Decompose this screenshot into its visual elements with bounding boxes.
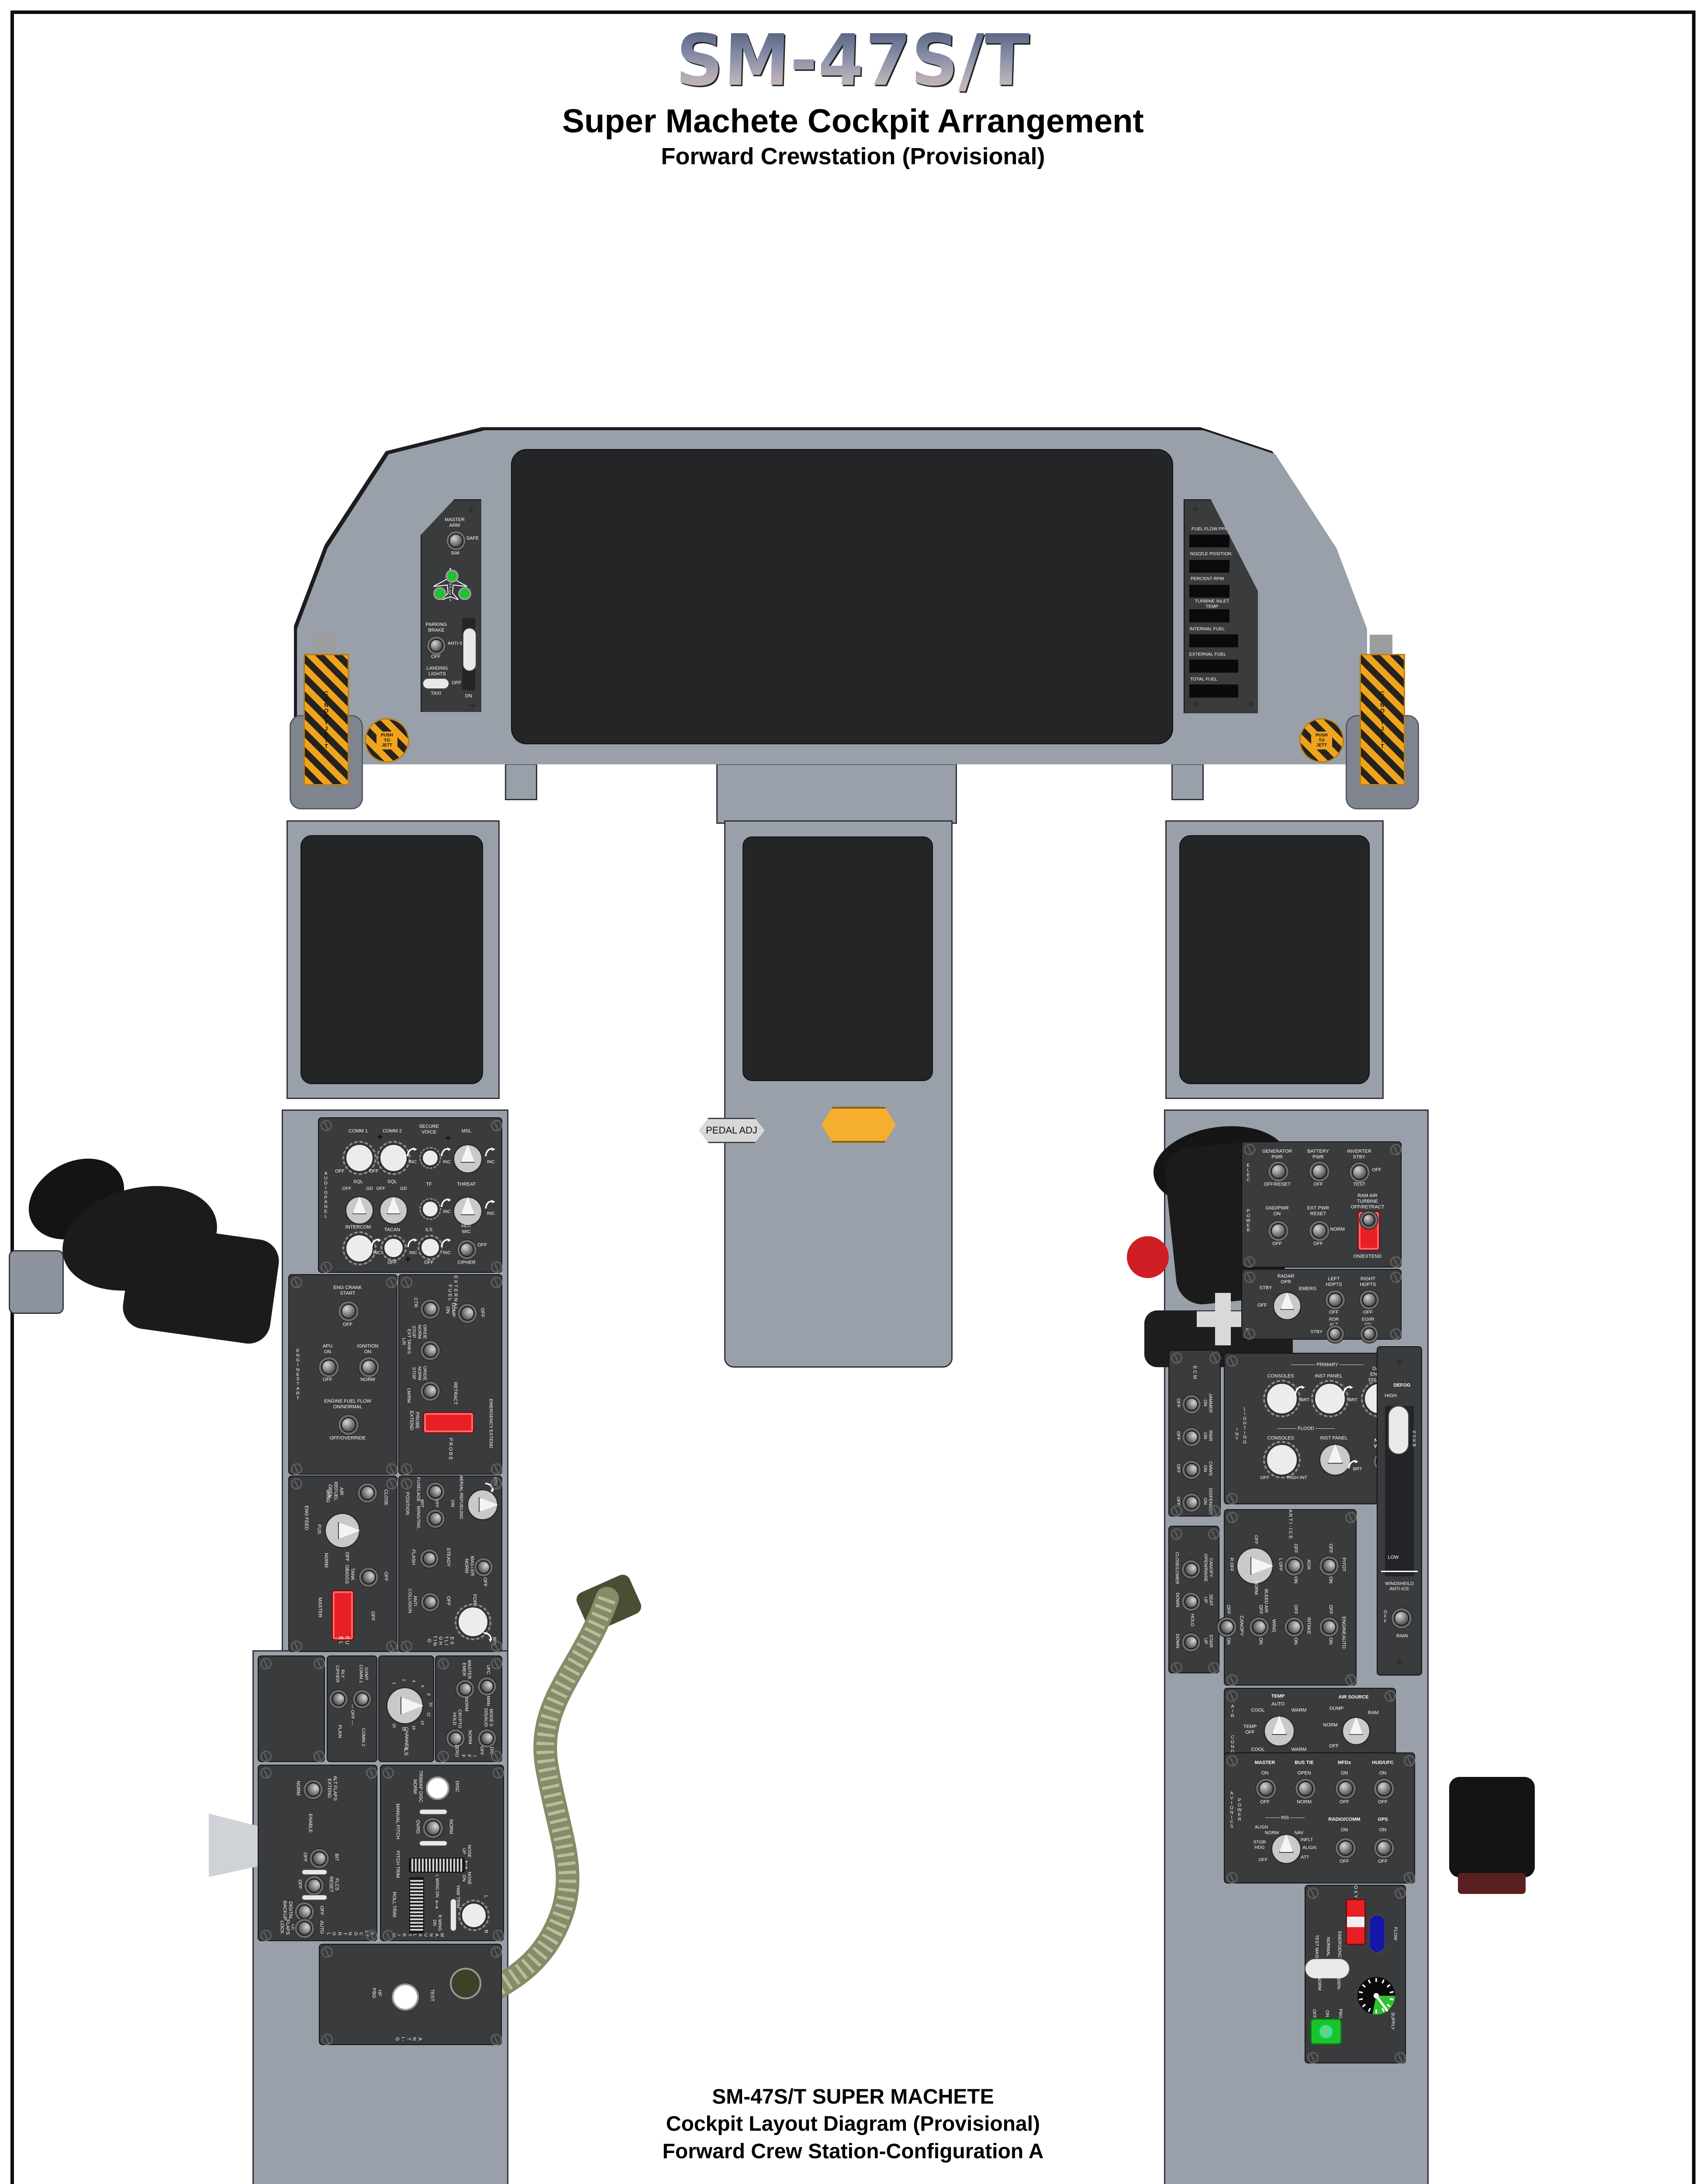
left_disc[interactable]: PUSH TO JETT (365, 718, 409, 763)
knob-pointer (1349, 1717, 1363, 1735)
title-block: SM-47S/T Super Machete Cockpit Arrangeme… (0, 23, 1706, 170)
tacan-knob[interactable] (383, 1237, 404, 1258)
defog-norm-label: NORM (1412, 1430, 1416, 1448)
glare-right-total-fuel-label: TOTAL FUEL (1190, 677, 1217, 682)
audio-inc-label: INC (443, 1209, 451, 1214)
antiice-panel: A N T I - I C EPITOTOFFONENGINEOFFONAUTO… (1224, 1509, 1357, 1686)
gear-nose-light (445, 570, 459, 583)
aircond-screw-icon (1226, 1690, 1238, 1702)
iff-mode5-switch[interactable] (480, 1731, 494, 1745)
gnd-pwr-switch[interactable] (1271, 1223, 1286, 1239)
defog-ln-label (1381, 1571, 1418, 1572)
pitch-trim-wheel[interactable] (409, 1858, 465, 1873)
canopyseat-screw-icon (1171, 1528, 1182, 1540)
position-fuselage-switch[interactable] (428, 1485, 442, 1499)
avionics-screw-icon (1404, 1755, 1415, 1766)
oxygen-norm-label: NORM (1317, 1977, 1322, 1990)
antig-panel-content: HF PBGTESTA N T I - G (320, 1945, 501, 2044)
mantrim-trim-ap-disc-norm-label: TRIM/AP DISC NORM (412, 1770, 423, 1803)
iff-master-switch[interactable] (458, 1682, 472, 1696)
defog-rain-label: RAIN (1396, 1634, 1408, 1639)
battery-pwr-switch[interactable] (1312, 1164, 1327, 1179)
oxygen-on-label: ON (1325, 2010, 1330, 2017)
ecm-off-label: OFF (1176, 1497, 1181, 1506)
ilschan-dial-num-12: 12 (426, 1712, 431, 1717)
footer-block: SM-47S/T SUPER MACHETE Cockpit Layout Di… (0, 2084, 1706, 2184)
aircond-screw-icon (1385, 1690, 1396, 1702)
avionics-nav-label: NAV (1295, 1830, 1304, 1835)
avionics-on-label: ON (1341, 1828, 1348, 1833)
blank1-screw-icon (314, 1751, 325, 1762)
snsr-screw-icon (1390, 1272, 1402, 1283)
engstart-screw-icon (386, 1277, 397, 1288)
oxygen-supply-gauge (1357, 1977, 1395, 2015)
defog-defog-label: DEFOG (1393, 1383, 1410, 1389)
gxmt-panel: GXMT COMM 1— OFF —COMM 2RLY CIPHERPLAIN (327, 1655, 377, 1762)
gxmt-rly-cipher-label: RLY CIPHER (335, 1665, 345, 1683)
snsr-screw-icon (1390, 1328, 1402, 1340)
fuel-master-switch[interactable] (332, 1590, 354, 1641)
tank-obiggs-switch[interactable] (361, 1570, 376, 1585)
avionics-on-label: ON (1379, 1828, 1387, 1833)
ecm-jammer-on-label: JAMMER ON (1202, 1393, 1213, 1413)
audio-sql-label: SQL (387, 1179, 397, 1185)
extfuel-ext-tanks-l-r-label: EXT TANKS L/R (401, 1329, 412, 1354)
tf-knob[interactable] (421, 1200, 439, 1218)
aircond-off-label: OFF (1329, 1744, 1339, 1749)
audio--label: + (405, 1254, 411, 1266)
canopy-switch[interactable] (1184, 1562, 1198, 1576)
extltg-master-norm-label: MASTER NORM (463, 1556, 475, 1576)
blank1-screw-icon (260, 1751, 272, 1762)
sidestick-red-button (1127, 1236, 1169, 1278)
total-fuel-display (1189, 684, 1238, 698)
ecm-screw-icon (1209, 1505, 1221, 1517)
knob-pointer (387, 1196, 401, 1214)
audio-secure-voice-label: SECURE VOICE (419, 1124, 439, 1135)
generator-pwr-switch[interactable] (1271, 1164, 1286, 1179)
oxygen-mode-switch[interactable] (1346, 1899, 1366, 1945)
le-flaps-lock-switch[interactable] (297, 1921, 312, 1936)
gxmt-comm-switch[interactable] (355, 1692, 369, 1706)
antiice-screw-icon (1226, 1512, 1238, 1523)
fltctl-flcs-reset-label: FLCS RESET (328, 1876, 339, 1893)
ilschan-dial-num-8: 8 (426, 1693, 431, 1696)
elecpwr-inverter-stby-label: INVERTER STBY (1347, 1149, 1371, 1160)
external-fuel-display (1189, 660, 1238, 673)
ram-air-turbine-toggle[interactable] (1362, 1213, 1375, 1227)
defog-lever[interactable] (1388, 1406, 1409, 1455)
antiice-canopy-label: CANOPY (1239, 1616, 1244, 1636)
ecm-panel-content: E C MJAMMER ONOFFRWR ONOFFCMWS ONOFFDISP… (1169, 1351, 1220, 1516)
bleed-air-knob[interactable] (1236, 1547, 1274, 1585)
stair-switch[interactable] (1184, 1635, 1198, 1649)
probe-switch[interactable] (423, 1412, 474, 1434)
ecm-screw-icon (1171, 1352, 1182, 1364)
mantrim-panel: TRIM/AP DISC NORMDISCMANUAL PITCHOVRDNOR… (380, 1765, 504, 1941)
left_handle[interactable]: CANOPY JETT (304, 654, 349, 785)
threat-knob[interactable] (453, 1196, 483, 1226)
fltctl-bit-label: BIT (334, 1853, 339, 1861)
inc-arrow-icon (439, 1236, 452, 1249)
ecm-off-label: OFF (1176, 1431, 1181, 1441)
snsr-off-label: OFF (1329, 1310, 1339, 1316)
seat-switch[interactable] (1184, 1595, 1198, 1609)
audio-comm-1-label: COMM 1 (349, 1129, 368, 1134)
right_disc[interactable]: PUSH TO JETT (1299, 718, 1344, 763)
glare-right-percent-rpm-label: PERCENT RPM (1191, 576, 1224, 581)
intake-anti-ice-switch[interactable] (1287, 1620, 1302, 1635)
avionics-power-label: POWER (1237, 1798, 1242, 1822)
bit-switch[interactable] (312, 1851, 327, 1866)
canopyseat-close-lower-label: CLOSE/LOWER (1174, 1552, 1179, 1584)
anti-g-hose-port[interactable] (450, 1968, 481, 1999)
extltg-brt-label: BRT (419, 1500, 424, 1508)
parking-brake-switch[interactable] (429, 639, 443, 653)
snsr-screw-icon (1244, 1328, 1255, 1340)
ils-knob[interactable] (420, 1237, 440, 1258)
glare-right-internal-fuel-label: INTERNAL FUEL (1189, 626, 1225, 632)
elecpwr-off-label: OFF (1313, 1241, 1323, 1247)
oxygen-diluter-lever[interactable] (1305, 1958, 1350, 1979)
iff-norm-label: NORM (464, 1697, 469, 1711)
ecm-panel: E C MJAMMER ONOFFRWR ONOFFCMWS ONOFFDISP… (1168, 1350, 1221, 1517)
intltg-high-int-label: HIGH INT (1287, 1475, 1307, 1480)
extltg-panel-content: BRTAERIAL REFUELINGPOSITIONFUSELAGEWING/… (399, 1476, 501, 1651)
rdr-alt-switch[interactable] (1329, 1327, 1342, 1341)
gps-switch[interactable] (1376, 1840, 1392, 1856)
landing-gear-lever[interactable] (463, 628, 477, 671)
audio-hot-mic-label: HOT MIC (461, 1223, 471, 1235)
secure-voice-knob[interactable] (421, 1149, 439, 1167)
position-wingtail-switch[interactable] (428, 1512, 442, 1526)
ext-tanks-lmrm-switch[interactable] (423, 1384, 438, 1399)
apu-switch[interactable] (321, 1359, 337, 1375)
engstart-off-override-label: OFF/OVERRIDE (330, 1436, 366, 1441)
iff-screw-icon (491, 1751, 502, 1762)
snsr-left-hdpts-label: LEFT HDPTS (1326, 1276, 1342, 1288)
ilschan-panel-content: 12468101214161820CHANNELILS (379, 1656, 433, 1761)
landing-lights-switch[interactable] (422, 678, 449, 689)
manual-pitch-switch[interactable] (425, 1820, 441, 1836)
engstart-eng-crank-start-label: ENG CRANK START (333, 1285, 362, 1296)
iff-crypto-switch[interactable] (449, 1731, 463, 1745)
ext-ltg-master-switch[interactable] (477, 1560, 490, 1574)
percent-rpm-display (1189, 585, 1229, 598)
right-grip-handle[interactable] (1449, 1777, 1535, 1877)
avionics-off-label: OFF (1260, 1800, 1270, 1805)
avionics-radio-comm-label: RADIO/COMM (1328, 1817, 1360, 1823)
gxmt-plain-label: PLAIN (337, 1725, 342, 1738)
antiice-on-label: ON (1293, 1638, 1298, 1645)
engine-anti-ice-switch[interactable] (1322, 1620, 1336, 1635)
antiice-off-label: OFF (1258, 1605, 1264, 1614)
comm2-volume-knob[interactable] (379, 1144, 408, 1172)
oxygen-screw-icon (1307, 1887, 1319, 1899)
pbg-switch[interactable] (1310, 2018, 1342, 2045)
center-mfd-screen (742, 836, 933, 1081)
audio-panel: AUDIO PANELCOMM 1COMM 2SECURE VOICEMSL++… (318, 1117, 502, 1273)
mantrim-r-wing-dn-label: R WING DN (432, 1914, 442, 1932)
oxygen-normal-label: NORMAL (1326, 1937, 1331, 1957)
knob-pointer (352, 1196, 366, 1214)
aerial-refueling-knob[interactable] (467, 1489, 498, 1521)
ext-tanks-lr-switch[interactable] (423, 1343, 438, 1358)
audio-screw-icon (321, 1261, 332, 1273)
yaw-trim-knob[interactable] (461, 1902, 487, 1928)
manual-pitch-guard-l[interactable] (419, 1809, 448, 1815)
iff-screw-icon (491, 1658, 502, 1669)
fuel-close-label: CLOSE (383, 1489, 389, 1505)
canopy-anti-ice-switch[interactable] (1219, 1620, 1234, 1635)
mfds-switch[interactable] (1338, 1781, 1354, 1797)
left_disc-label: PUSH TO JETT (376, 732, 397, 750)
snsr-eo-ir-on-label: EO/IR ON (1362, 1317, 1374, 1328)
intltg-lighting-label: LIGHTING (1243, 1406, 1247, 1444)
inc-arrow-icon (1293, 1383, 1306, 1396)
avionics-bus-tie-label: BUS TIE (1295, 1760, 1313, 1766)
intltg-brt-label: BRT (1301, 1397, 1310, 1403)
audio-inc-label: INC (409, 1159, 417, 1165)
cabin-temp-knob[interactable] (1264, 1715, 1295, 1747)
pitot-anti-ice-switch[interactable] (1322, 1559, 1336, 1573)
digital-backup-switch[interactable] (297, 1904, 312, 1919)
inc-arrow-icon (483, 1197, 497, 1210)
intltg-screw-icon (1226, 1493, 1238, 1504)
eng-crank-switch[interactable] (341, 1303, 356, 1319)
canopyseat-seat-up-label: SEAT UP (1203, 1594, 1214, 1606)
fuel-screw-icon (291, 1478, 302, 1489)
antiice-l-off-label: L OFF (1278, 1558, 1283, 1571)
elecpwr-screw-icon (1244, 1144, 1255, 1155)
ext-pwr-switch[interactable] (1312, 1223, 1327, 1239)
comm1-sql-knob[interactable] (345, 1196, 374, 1225)
air-refuel-switch[interactable] (360, 1486, 375, 1500)
intltg-inst-panel-label: INST PANEL (1315, 1374, 1342, 1379)
intltg-brt-label: BRT (1349, 1397, 1358, 1403)
aircond-warm-label: WARM (1292, 1708, 1306, 1714)
elecpwr-ram-air-turbine-off-retract-label: RAM AIR TURBINE OFF/RETRACT (1351, 1193, 1385, 1210)
audio-off-label: OFF (335, 1169, 345, 1175)
snsr-stby-label: STBY (1260, 1286, 1272, 1291)
yaw-trim-guard[interactable] (450, 1898, 457, 1932)
glare-left-off-label: OFF (452, 681, 461, 686)
roll-trim-wheel[interactable] (409, 1877, 424, 1933)
knob-pointer (1279, 1834, 1293, 1853)
elecpwr-screw-icon (1244, 1256, 1255, 1268)
avionics-master-switch[interactable] (1258, 1781, 1274, 1797)
aircond-temp-label: TEMP (1271, 1694, 1285, 1700)
ins-mode-knob[interactable] (1271, 1834, 1302, 1864)
aircond-cool-label: COOL (1251, 1708, 1264, 1714)
right_handle[interactable]: CANOPY JETT (1360, 654, 1405, 785)
fltctl-auto-label: AUTO (319, 1921, 325, 1934)
jammer-switch[interactable] (1185, 1397, 1198, 1411)
engstart-screw-icon (291, 1463, 302, 1475)
extltg-screw-icon (401, 1478, 412, 1489)
dispenser-switch[interactable] (1185, 1496, 1198, 1510)
alt-flaps-switch[interactable] (306, 1782, 321, 1797)
antiice-on-label: ON (1293, 1576, 1298, 1584)
windshield-anti-ice-switch[interactable] (1394, 1610, 1409, 1626)
antig-screw-icon (321, 1946, 333, 1958)
anti-collision-switch[interactable] (423, 1595, 437, 1609)
iff-crypto-hold-label: CRYPTO HOLD (452, 1709, 463, 1728)
eng-feed-knob[interactable] (325, 1513, 360, 1548)
canopyseat-panel: CANOPY OPEN/RAISECLOSE/LOWERSEAT UPDOWNH… (1168, 1526, 1219, 1673)
canopyseat-screw-icon (1208, 1662, 1219, 1673)
iff-zero-label: ZERO (454, 1744, 459, 1757)
antiice-r-off-label: R OFF (1229, 1558, 1234, 1572)
extltg-screw-icon (491, 1478, 502, 1489)
audio-tacan-label: TACAN (384, 1227, 400, 1233)
intltg-consoles-label: CONSOLES (1267, 1374, 1294, 1379)
left-hdpts-switch[interactable] (1328, 1292, 1343, 1307)
fltctl-panel-content: ALT FLAPS EXTENDNORMENABLEBITOFFFLCS RES… (259, 1766, 376, 1940)
audio-tf-label: TF (426, 1182, 432, 1188)
antig-screw-icon (490, 1946, 502, 1958)
aircraft-designation: SM-47S/T (675, 20, 1031, 102)
hot-mic-switch[interactable] (459, 1242, 474, 1257)
snsr-panel: RRADAR OPRSTBYEMERGOFFLEFT HDPTSOFFRIGHT… (1241, 1269, 1402, 1340)
defog-high-label: HIGH (1385, 1393, 1397, 1399)
air-source-knob[interactable] (1342, 1717, 1371, 1745)
gear-right-light (458, 587, 471, 600)
fltctl-off-label: OFF (297, 1880, 303, 1889)
intltg-brt-label: BRT (1353, 1466, 1362, 1472)
hud-ufc-switch[interactable] (1376, 1781, 1392, 1797)
rly-cipher-switch[interactable] (332, 1692, 345, 1706)
right-hdpts-switch[interactable] (1362, 1292, 1377, 1307)
trim-ap-disc-button[interactable] (426, 1776, 449, 1800)
comm1-volume-knob[interactable] (345, 1144, 374, 1172)
extfuel-dump-on-label: DUMP ON (445, 1303, 456, 1317)
fltctl-off-label: OFF (319, 1906, 325, 1915)
anti-g-test-button[interactable] (392, 1984, 419, 2011)
bus-tie-switch[interactable] (1298, 1781, 1313, 1797)
extfuel-screw-icon (491, 1463, 502, 1475)
antiice-off-label: OFF (1226, 1605, 1231, 1614)
ilschan-dial-num-4: 4 (411, 1680, 416, 1682)
aoa-anti-ice-switch[interactable] (1287, 1559, 1302, 1573)
fuel-f-u-e-l-label: F U E L (338, 1635, 350, 1646)
iff-ufc-man-switch[interactable] (480, 1679, 494, 1693)
engstart-engine-fuel-flow-on-normal-label: ENGINE FUEL FLOW ON/NORMAL (324, 1399, 371, 1410)
iff-off-label: OFF (479, 1746, 484, 1755)
glare-left-sim-label: SIM (451, 551, 459, 556)
avionics-screw-icon (1226, 1755, 1238, 1766)
extltg-off-label: OFF (434, 1500, 439, 1508)
comm2-sql-knob[interactable] (379, 1196, 408, 1225)
avionics-align-label: ALIGN (1255, 1825, 1268, 1830)
avionics-inflt-label: INFLT (1301, 1837, 1313, 1842)
inc-arrow-icon (405, 1145, 418, 1158)
intltg-flood-label: ———— FLOOD ———— (1277, 1426, 1335, 1432)
antiice-norm-label: NORM (1254, 1581, 1259, 1595)
avionics-mfds-label: MFDs (1338, 1760, 1351, 1766)
mantrim-nose-up-label: NOSE UP (461, 1845, 472, 1858)
manual-pitch-guard-r[interactable] (419, 1840, 448, 1846)
engine-fuel-flow-switch[interactable] (341, 1417, 356, 1433)
fuel-dump-switch[interactable] (460, 1306, 475, 1321)
oxygen-test-mask-label: TEST MASK (1314, 1935, 1319, 1960)
left-mfd-screen (300, 835, 483, 1084)
oxygen-flow-indicator[interactable] (1369, 1914, 1385, 1953)
mantrim-panel-content: TRIM/AP DISC NORMDISCMANUAL PITCHOVRDNOR… (381, 1766, 503, 1940)
fuel-panel: AIR REFUEL OPENCLOSEENG FEEDFUSWINGNORMO… (288, 1476, 397, 1652)
audio-inc-label: INC (487, 1211, 495, 1216)
audio-screw-icon (491, 1261, 502, 1273)
aircond-cond-label: COND (1231, 1735, 1234, 1754)
mantrim--label: ⟷ (463, 1860, 470, 1869)
ignition-switch[interactable] (361, 1359, 377, 1375)
canopyseat-stair-up-label: STAIR UP (1203, 1635, 1214, 1648)
cmws-switch[interactable] (1185, 1463, 1198, 1477)
flood-consoles-knob[interactable] (1266, 1444, 1298, 1476)
antiice-off-label: OFF (1254, 1535, 1259, 1545)
canopyseat-hold-label: HOLD (1190, 1614, 1195, 1626)
ext-fuel-ctr-switch[interactable] (423, 1302, 438, 1317)
antig-hf-pbg-label: HF PBG (371, 1988, 382, 1998)
fuel-flow-display (1189, 535, 1229, 547)
avionics-gps-label: GPS (1378, 1817, 1388, 1823)
extfuel-retract-label: RETRACT (452, 1382, 458, 1405)
fltctl-screw-icon (260, 1767, 272, 1779)
extltg-screw-icon (491, 1641, 502, 1652)
flcs-guard-right[interactable] (301, 1894, 328, 1901)
flcs-reset-switch[interactable] (307, 1878, 321, 1893)
glare-right-turbine-inlet-temp-label: TURBINE INLET TEMP (1189, 599, 1236, 610)
antiice-screw-icon (1345, 1512, 1357, 1523)
extltg-position-label: POSITION (404, 1492, 410, 1515)
extltg-flash-label: FLASH (411, 1549, 416, 1565)
ils-channel-knob[interactable] (386, 1687, 424, 1724)
knob-pointer (1327, 1444, 1343, 1464)
audio-threat-label: THREAT (457, 1182, 476, 1188)
eo-ir-switch[interactable] (1363, 1327, 1376, 1341)
fuel-tank-obiggs-label: TANK OBIGGS (344, 1565, 355, 1583)
antiice-auto-label: AUTO (1341, 1635, 1347, 1648)
extltg-screw-icon (401, 1641, 412, 1652)
flcs-guard-left[interactable] (301, 1869, 328, 1875)
glare-left-parking-brake-label: PARKING BRAKE (426, 622, 447, 633)
inverter-switch[interactable] (1352, 1165, 1368, 1180)
master-arm-switch[interactable] (449, 533, 463, 548)
audio-inc-label: INC (443, 1159, 451, 1165)
cockpit-diagram-page: SM-47S/T Super Machete Cockpit Arrangeme… (0, 0, 1706, 2184)
right-grip-base (1458, 1873, 1526, 1894)
aircond-ram-label: RAM (1368, 1711, 1378, 1716)
defog--label: + (1396, 1655, 1403, 1669)
radar-mode-knob[interactable] (1273, 1292, 1302, 1320)
rwr-switch[interactable] (1185, 1430, 1198, 1444)
flash-steady-switch[interactable] (422, 1552, 436, 1565)
elecpwr-power-label: POWER (1246, 1209, 1250, 1233)
fuel-off-label: OFF (344, 1552, 350, 1562)
msl-volume-knob[interactable] (453, 1144, 483, 1174)
turbine-inlet-temp-display (1189, 609, 1229, 622)
antiice-aoa-label: AOA (1306, 1559, 1312, 1569)
extltg-fuselage-label: FUSELAGE (416, 1477, 421, 1502)
wing-anti-ice-switch[interactable] (1252, 1620, 1267, 1635)
audio-cipher-label: CIPHER (457, 1260, 476, 1266)
engstart-off-label: OFF (323, 1377, 332, 1383)
aircond-warm-label: WARM (1292, 1747, 1306, 1753)
mantrim--label: ⟷ (433, 1900, 441, 1909)
radio-comm-switch[interactable] (1338, 1840, 1354, 1856)
antiice-off-label: OFF (1328, 1544, 1333, 1553)
mantrim-norm-label: NORM (448, 1819, 454, 1834)
